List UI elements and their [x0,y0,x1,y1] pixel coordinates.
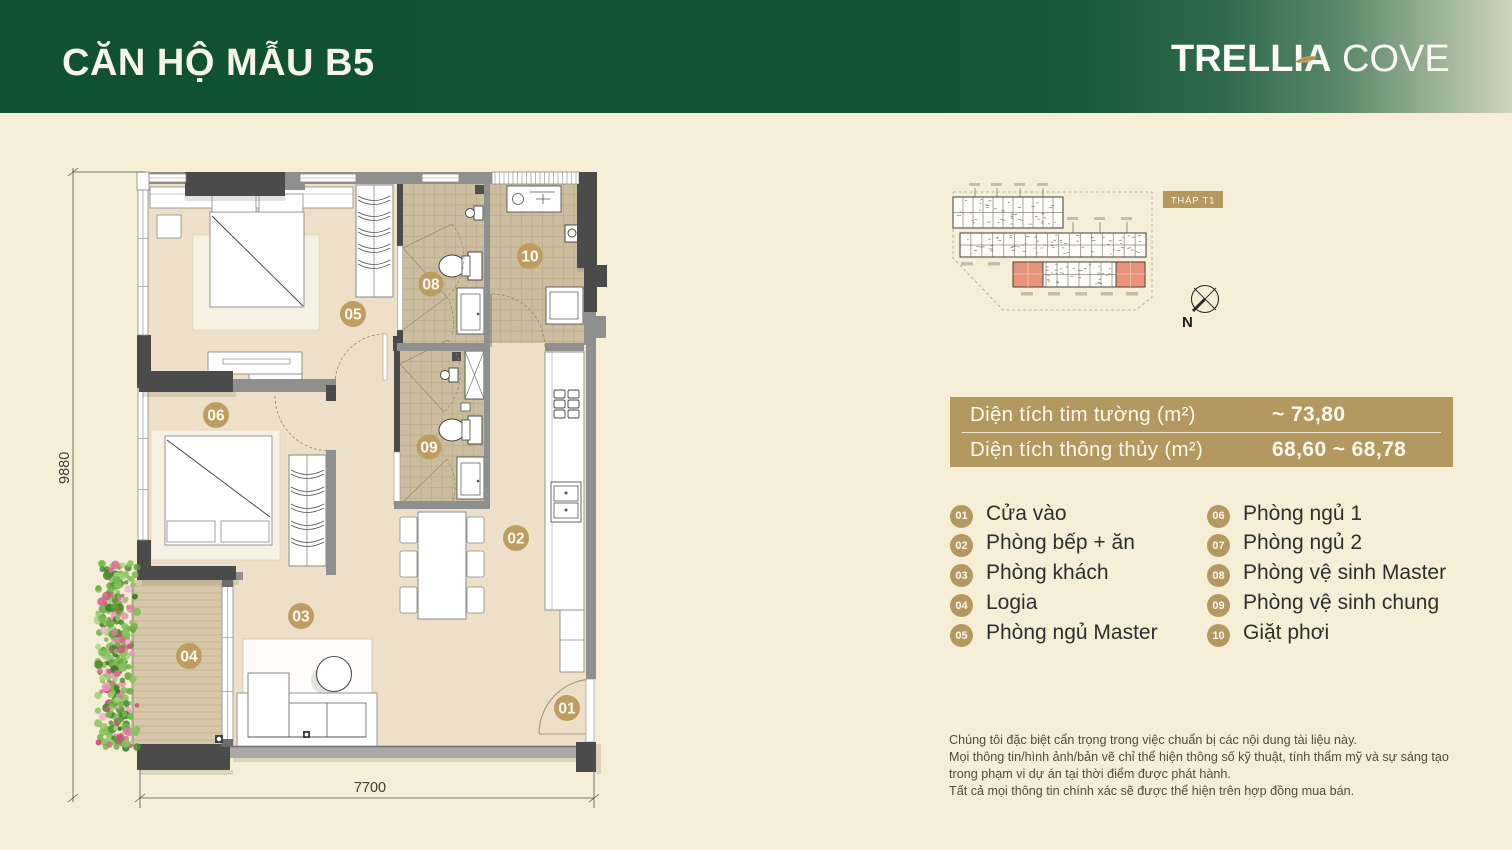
svg-text:08: 08 [422,277,440,294]
svg-text:09: 09 [420,440,438,457]
svg-text:10: 10 [521,249,538,266]
svg-text:N: N [1182,314,1193,331]
svg-text:05: 05 [344,307,362,324]
svg-text:02: 02 [507,531,524,548]
svg-text:04: 04 [180,649,198,666]
svg-text:9880: 9880 [57,452,73,484]
svg-text:7700: 7700 [354,780,386,796]
svg-text:01: 01 [558,701,576,718]
svg-text:THÁP T1: THÁP T1 [1171,196,1215,207]
svg-text:06: 06 [207,408,225,425]
svg-text:03: 03 [292,609,310,626]
